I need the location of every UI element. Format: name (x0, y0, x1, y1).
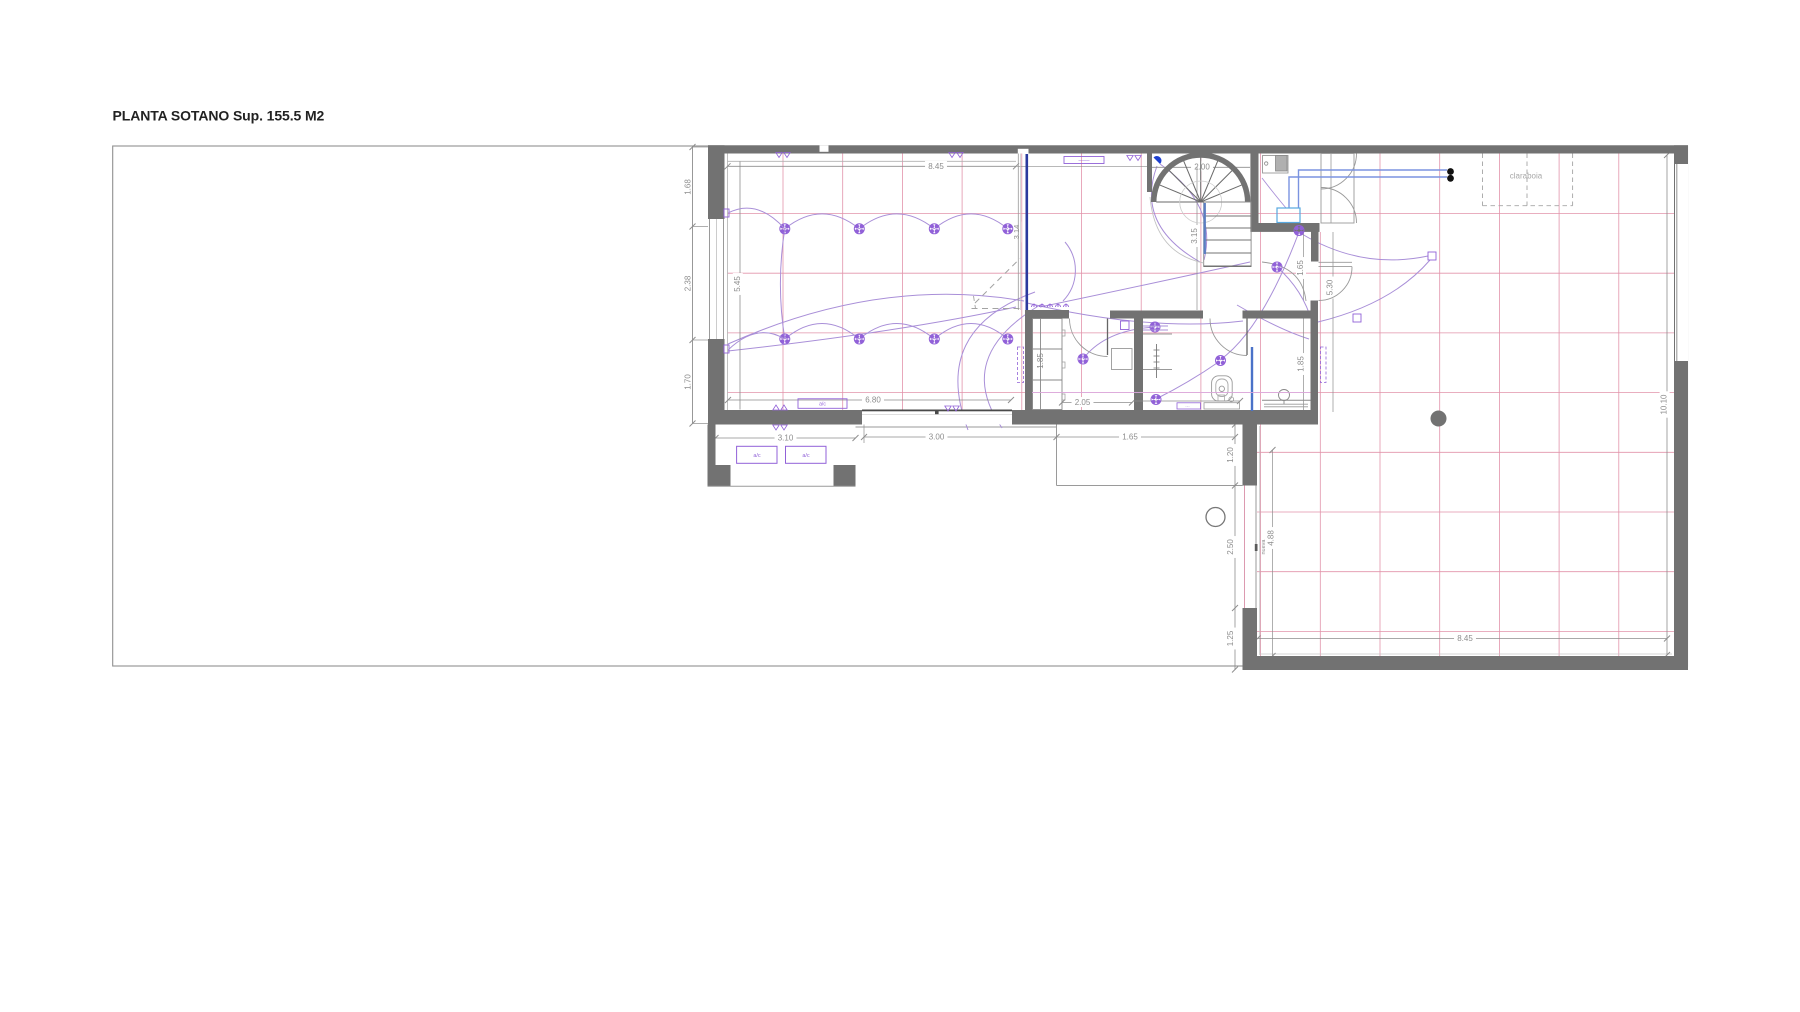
svg-text:a/c: a/c (753, 453, 761, 459)
svg-text:2.05: 2.05 (1075, 398, 1091, 407)
svg-text:1.70: 1.70 (684, 374, 693, 390)
svg-text:PLANTA SOTANO Sup. 155.5 M2: PLANTA SOTANO Sup. 155.5 M2 (113, 107, 325, 123)
svg-text:···: ··· (1185, 403, 1190, 408)
svg-text:claraboia: claraboia (1510, 171, 1543, 180)
svg-text:2.50: 2.50 (1226, 539, 1235, 555)
svg-text:8.45: 8.45 (928, 162, 944, 171)
svg-text:2.00: 2.00 (1194, 162, 1210, 171)
svg-text:1.65: 1.65 (1122, 433, 1138, 442)
svg-text:5.45: 5.45 (733, 276, 742, 292)
svg-text:1.85: 1.85 (1296, 356, 1305, 372)
svg-text:3.14: 3.14 (1012, 225, 1021, 240)
svg-text:4.88: 4.88 (1267, 530, 1276, 546)
svg-text:3.10: 3.10 (778, 434, 794, 443)
svg-text:1.20: 1.20 (1226, 447, 1235, 463)
svg-text:a/c: a/c (819, 401, 826, 407)
svg-text:1.68: 1.68 (684, 179, 693, 195)
svg-text:3.00: 3.00 (929, 433, 945, 442)
svg-text:1.25: 1.25 (1226, 630, 1235, 646)
svg-text:2.38: 2.38 (684, 275, 693, 291)
svg-text:8.45: 8.45 (1457, 634, 1473, 643)
svg-text:5.30: 5.30 (1326, 279, 1335, 295)
svg-text:a/c: a/c (802, 453, 810, 459)
svg-text:3.15: 3.15 (1190, 228, 1199, 244)
svg-text:1.65: 1.65 (1296, 260, 1305, 276)
svg-text:nueva: nueva (1261, 539, 1267, 555)
svg-text:­––––: ­–––– (1078, 158, 1089, 164)
svg-text:6.80: 6.80 (865, 396, 881, 405)
svg-text:10.10: 10.10 (1660, 394, 1669, 415)
